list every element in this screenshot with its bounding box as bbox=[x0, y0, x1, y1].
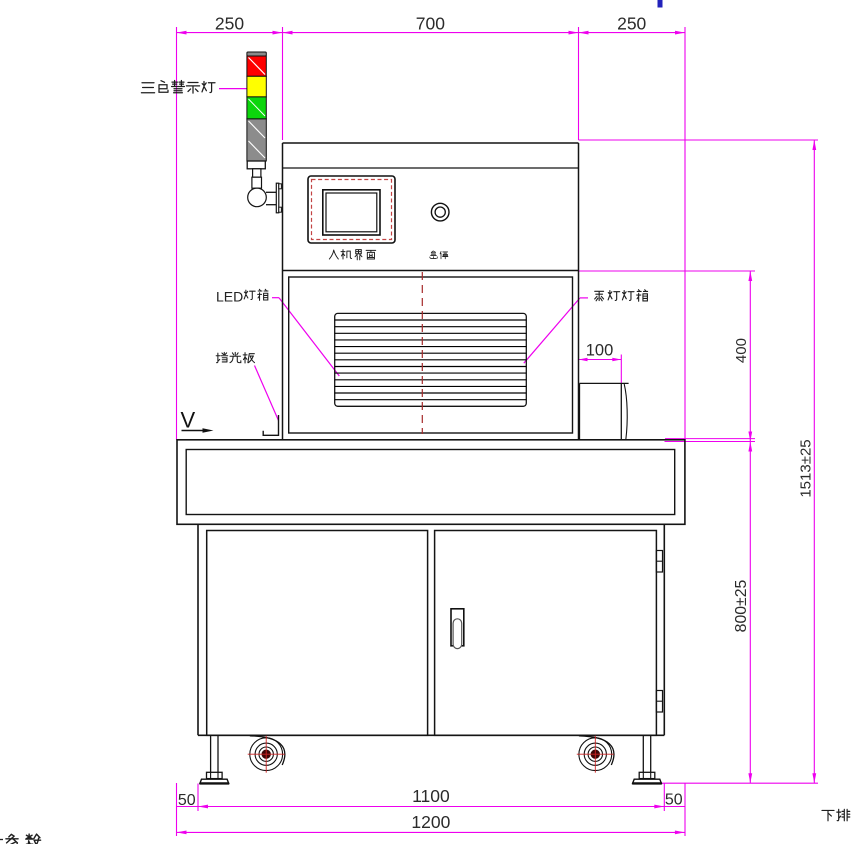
svg-text:100: 100 bbox=[586, 342, 614, 360]
svg-text:1513±25: 1513±25 bbox=[798, 439, 815, 497]
svg-text:800±25: 800±25 bbox=[733, 579, 750, 632]
svg-text:700: 700 bbox=[416, 14, 445, 34]
svg-text:400: 400 bbox=[733, 338, 750, 363]
svg-text:250: 250 bbox=[215, 14, 244, 34]
svg-text:50: 50 bbox=[665, 792, 683, 809]
svg-text:LED: LED bbox=[216, 289, 243, 305]
svg-text:50: 50 bbox=[178, 792, 196, 809]
svg-text:V: V bbox=[181, 408, 196, 433]
svg-text:250: 250 bbox=[617, 14, 646, 34]
svg-text:1200: 1200 bbox=[411, 812, 450, 832]
svg-text:1100: 1100 bbox=[412, 786, 450, 806]
